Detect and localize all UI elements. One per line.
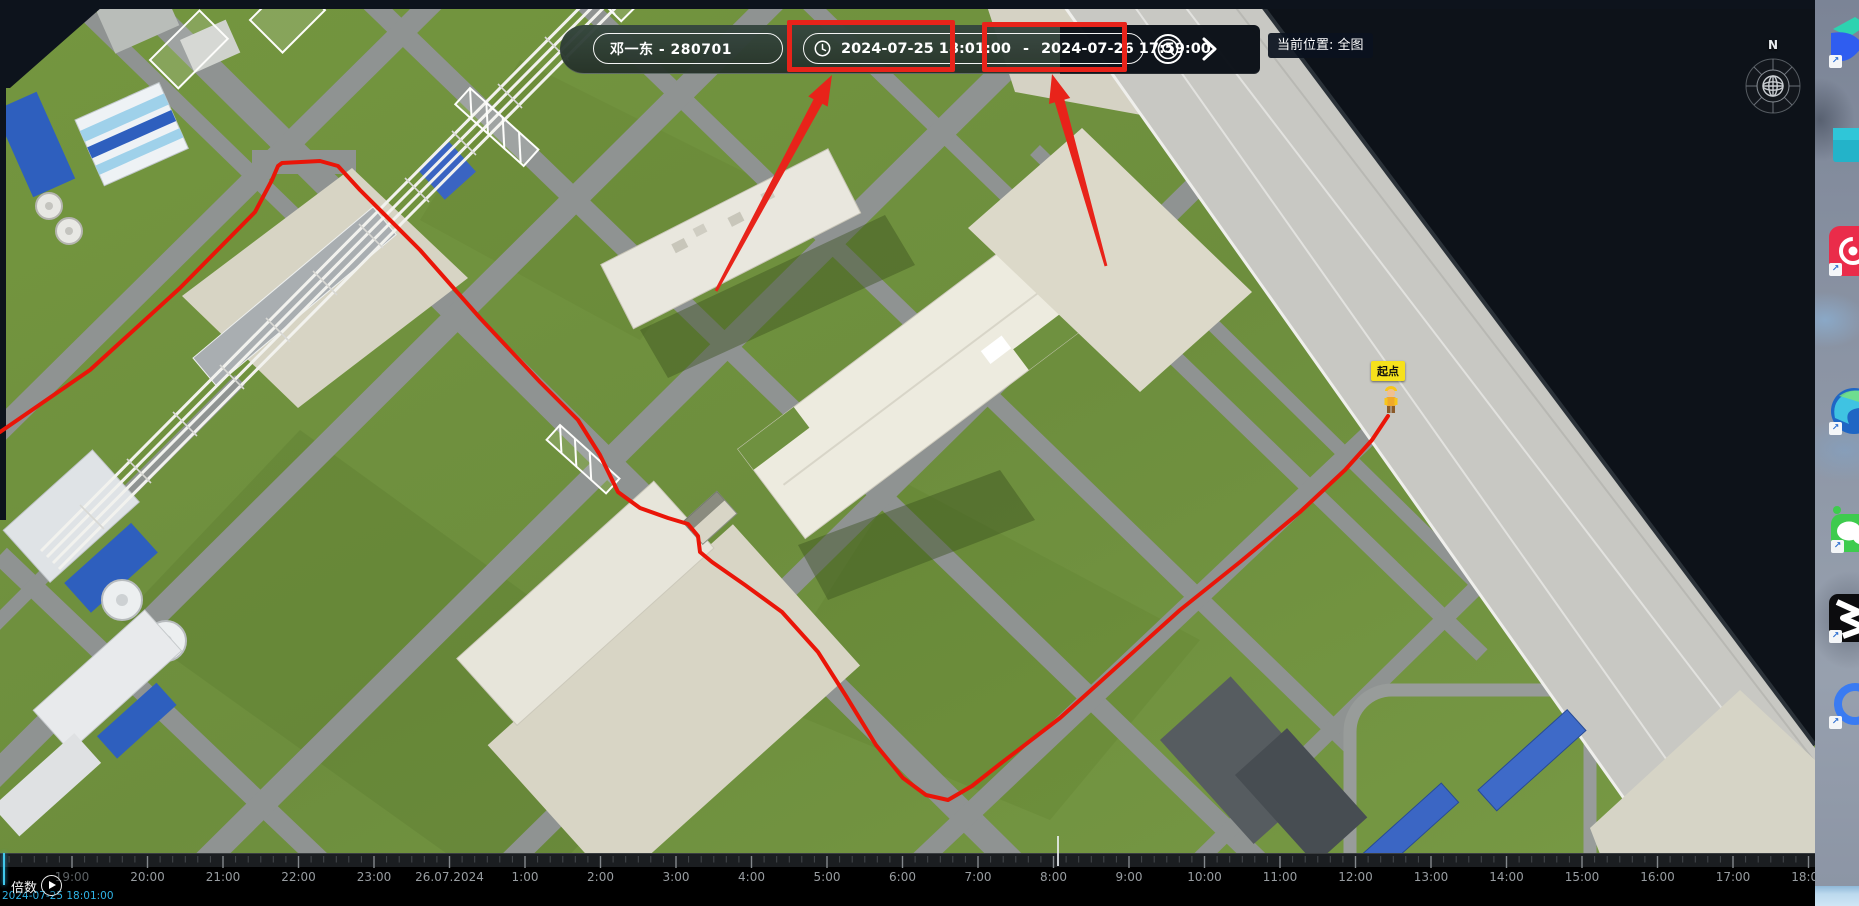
desktop-icon-this-pc[interactable] bbox=[1833, 126, 1859, 172]
worker-figure bbox=[1380, 384, 1402, 416]
timeline-hour-label: 17:00 bbox=[1716, 870, 1751, 884]
timeline-hour-label: 22:00 bbox=[281, 870, 316, 884]
search-button[interactable] bbox=[1152, 33, 1184, 65]
timeline-ticks bbox=[0, 855, 1815, 869]
search-icon bbox=[1152, 33, 1184, 65]
map-flagpole bbox=[1057, 836, 1059, 866]
timeline-hour-label: 6:00 bbox=[889, 870, 916, 884]
timeline-hour-label: 1:00 bbox=[512, 870, 539, 884]
desktop-icon-wecom[interactable]: ↗ bbox=[1829, 680, 1859, 734]
timeline-hour-label: 5:00 bbox=[814, 870, 841, 884]
timeline-hour-label: 16:00 bbox=[1640, 870, 1675, 884]
shortcut-arrow-icon: ↗ bbox=[1831, 540, 1844, 553]
timeline-hour-label: 7:00 bbox=[965, 870, 992, 884]
compass-north-label: N bbox=[1768, 38, 1778, 52]
shortcut-arrow-icon: ↗ bbox=[1829, 422, 1842, 435]
timeline-hour-label: 8:00 bbox=[1040, 870, 1067, 884]
desktop-icon-microsoft-edge[interactable]: ↗ bbox=[1829, 386, 1859, 440]
map-canvas[interactable]: 起点 bbox=[0, 0, 1815, 906]
desktop-icon-wechat[interactable]: ↗ bbox=[1831, 506, 1859, 558]
timeline-hour-label: 20:00 bbox=[130, 870, 165, 884]
map-scene bbox=[0, 0, 1815, 906]
next-button[interactable] bbox=[1196, 35, 1222, 63]
timeline-hour-label: 12:00 bbox=[1338, 870, 1373, 884]
shortcut-arrow-icon: ↗ bbox=[1829, 263, 1842, 276]
timeline-hour-label: 14:00 bbox=[1489, 870, 1524, 884]
desktop-icon-netease-mail[interactable]: ↗ bbox=[1829, 226, 1859, 282]
desktop-bottom-bar bbox=[1815, 886, 1859, 906]
timeline-hour-label: 13:00 bbox=[1414, 870, 1449, 884]
speed-multiplier-label: 倍数 bbox=[11, 877, 37, 896]
desktop-strip: ↗ 飞 此电 ↗ 网易 ↗ Micr bbox=[1815, 0, 1859, 906]
person-select[interactable]: 邓一东 - 280701 bbox=[593, 33, 783, 64]
compass-icon bbox=[1743, 56, 1803, 118]
highlight-box-end-time bbox=[982, 22, 1127, 72]
person-select-value: 邓一东 - 280701 bbox=[610, 39, 732, 59]
timeline-hour-label: 3:00 bbox=[663, 870, 690, 884]
shortcut-arrow-icon: ↗ bbox=[1829, 630, 1842, 643]
play-icon bbox=[49, 881, 56, 889]
timeline-hour-label: 2:00 bbox=[587, 870, 614, 884]
timeline-hour-label: 23:00 bbox=[357, 870, 392, 884]
play-button[interactable] bbox=[41, 875, 62, 896]
timeline-playhead[interactable] bbox=[3, 853, 5, 885]
compass-control[interactable]: N bbox=[1743, 38, 1803, 120]
timeline-hour-label: 4:00 bbox=[738, 870, 765, 884]
start-point-marker: 起点 bbox=[1371, 361, 1405, 381]
timeline[interactable]: 19:0020:0021:0022:0023:0026.07.20241:002… bbox=[0, 853, 1815, 906]
current-location-badge: 当前位置: 全图 bbox=[1268, 33, 1373, 58]
timeline-hour-label: 11:00 bbox=[1263, 870, 1298, 884]
screen: 起点 邓一东 - 280701 2024-07-25 18:01:00 - 20… bbox=[0, 0, 1859, 906]
shortcut-arrow-icon: ↗ bbox=[1829, 716, 1842, 729]
chevron-right-icon bbox=[1196, 35, 1222, 63]
timeline-ruler[interactable] bbox=[0, 853, 1815, 867]
timeline-hour-label: 9:00 bbox=[1116, 870, 1143, 884]
timeline-hour-label: 10:00 bbox=[1187, 870, 1222, 884]
highlight-box-start-time bbox=[787, 20, 955, 72]
desktop-icon-jianying[interactable]: ↗ bbox=[1829, 594, 1859, 648]
timeline-hour-label: 26.07.2024 bbox=[415, 870, 484, 884]
timeline-hour-label: 21:00 bbox=[206, 870, 241, 884]
timeline-hour-label: 15:00 bbox=[1565, 870, 1600, 884]
shortcut-arrow-icon: ↗ bbox=[1829, 55, 1842, 68]
desktop-icon-feishu[interactable]: ↗ bbox=[1829, 15, 1859, 75]
